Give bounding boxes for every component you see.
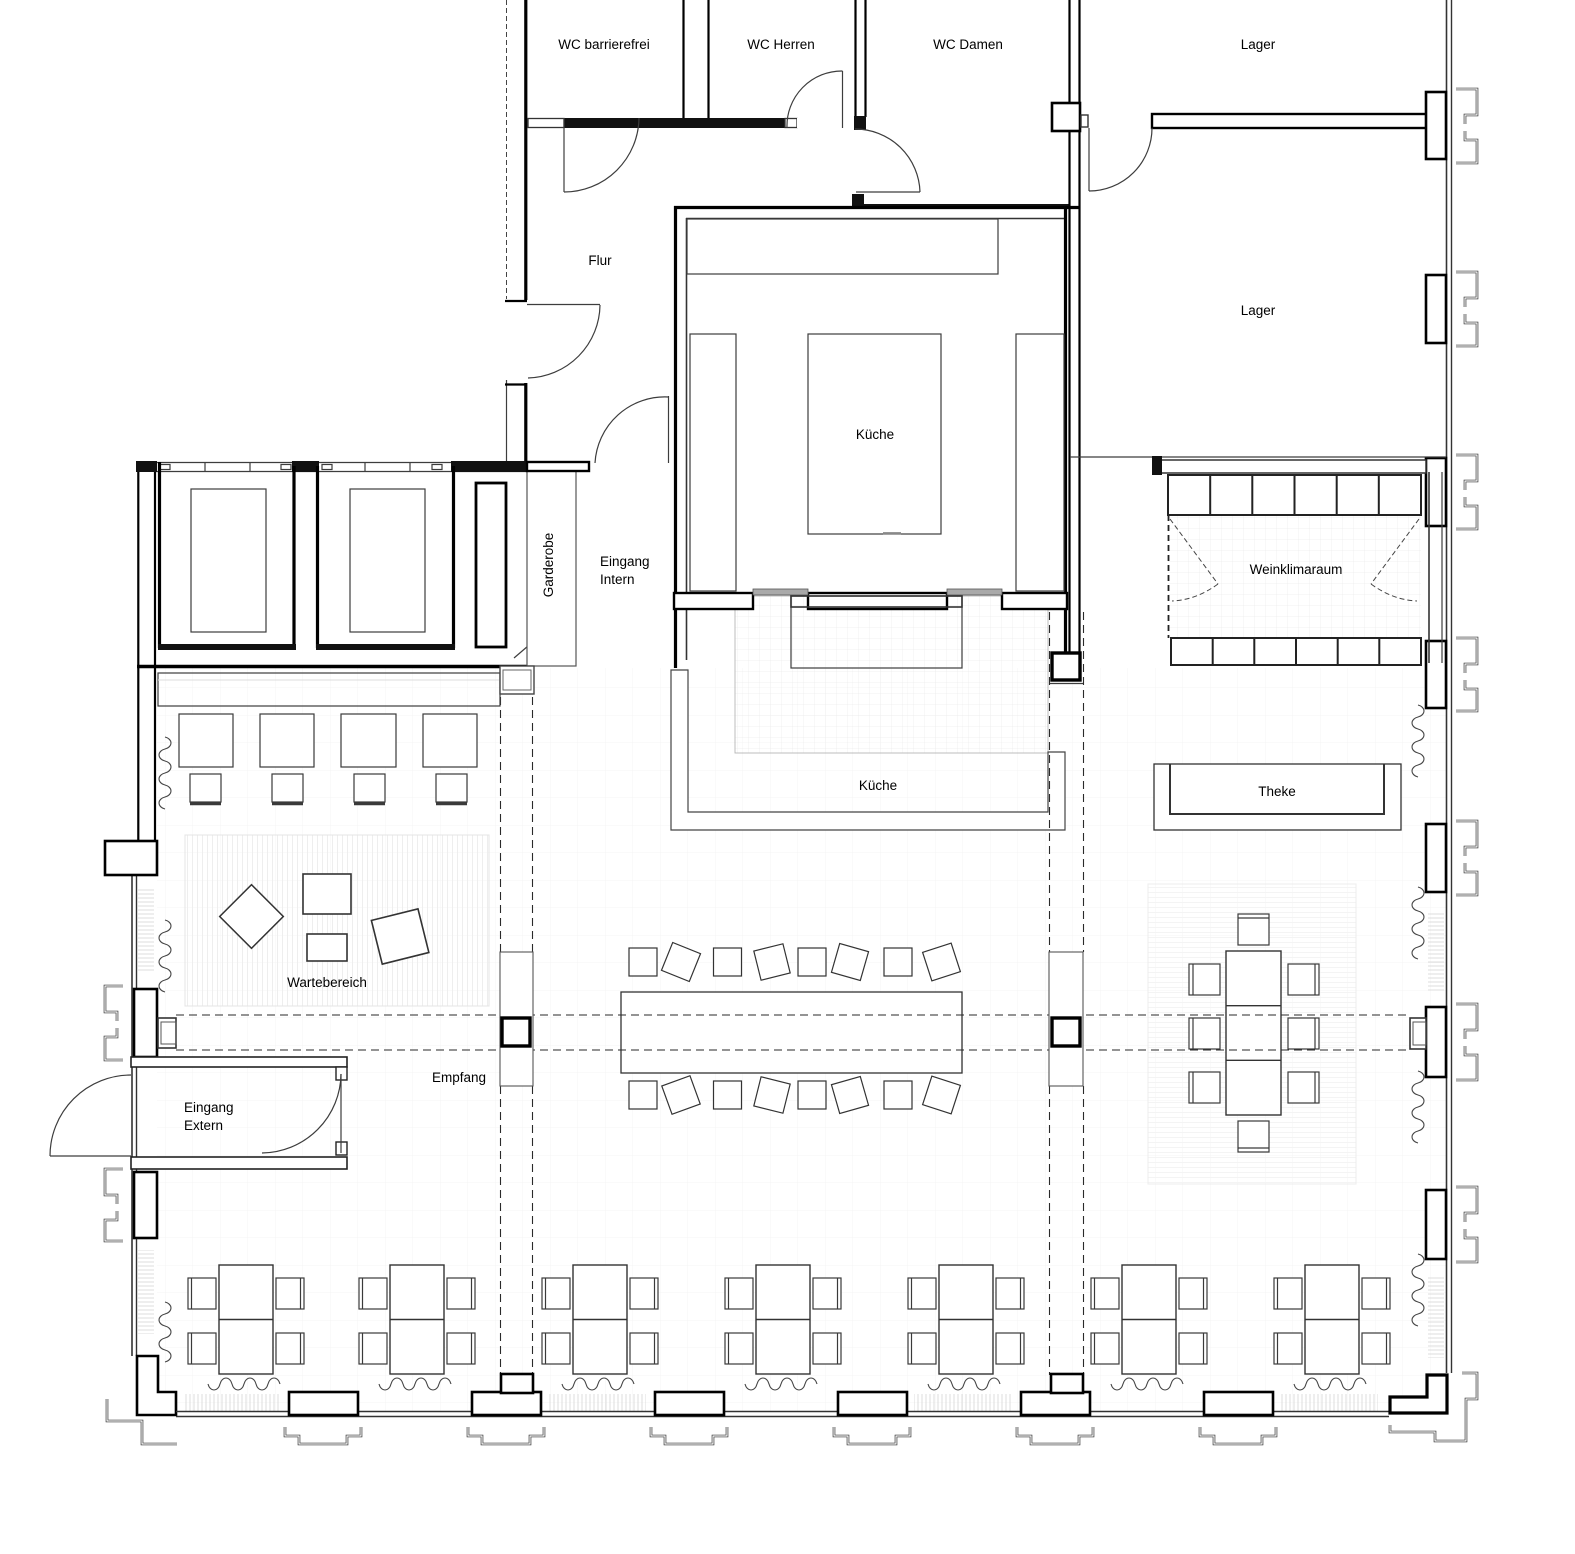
svg-text:Intern: Intern <box>600 572 635 587</box>
svg-text:WC Damen: WC Damen <box>933 37 1003 52</box>
svg-text:Lager: Lager <box>1241 303 1276 318</box>
svg-text:Garderobe: Garderobe <box>541 533 556 598</box>
svg-text:Flur: Flur <box>588 253 612 268</box>
svg-text:Eingang: Eingang <box>184 1100 234 1115</box>
svg-text:WC barrierefrei: WC barrierefrei <box>558 37 650 52</box>
svg-text:Theke: Theke <box>1258 784 1296 799</box>
svg-text:Extern: Extern <box>184 1118 223 1133</box>
svg-text:Küche: Küche <box>859 778 897 793</box>
svg-text:Lager: Lager <box>1241 37 1276 52</box>
svg-text:Eingang: Eingang <box>600 554 650 569</box>
svg-text:Weinklimaraum: Weinklimaraum <box>1250 562 1343 577</box>
svg-text:Empfang: Empfang <box>432 1070 486 1085</box>
svg-text:WC Herren: WC Herren <box>747 37 815 52</box>
svg-text:Wartebereich: Wartebereich <box>287 975 367 990</box>
svg-text:Küche: Küche <box>856 427 894 442</box>
